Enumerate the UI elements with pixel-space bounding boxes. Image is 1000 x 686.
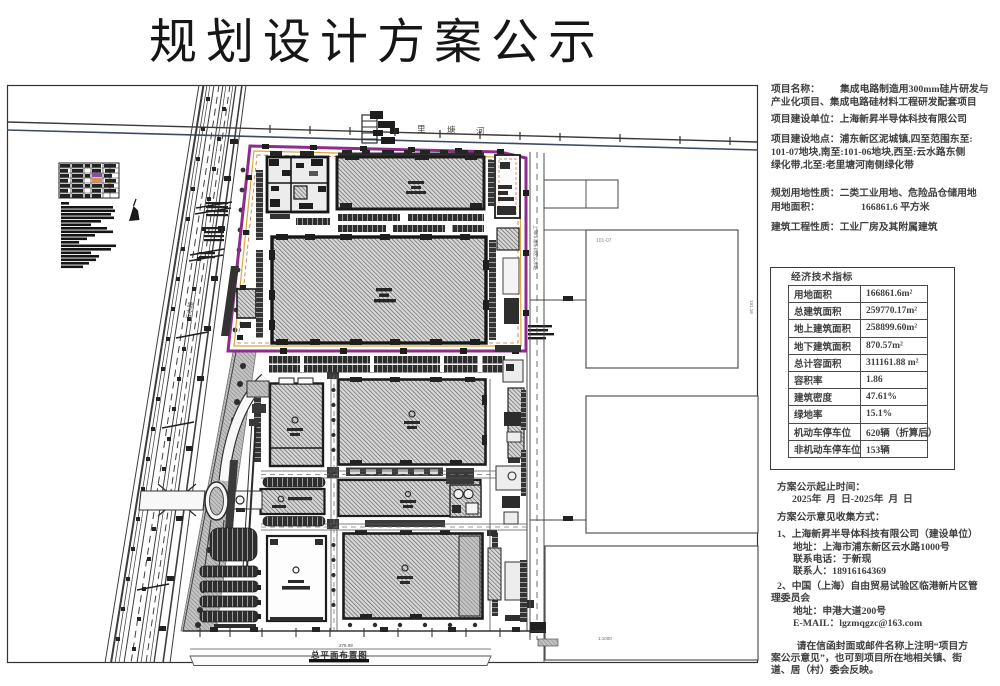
svg-text:总平面布置图: 总平面布置图: [311, 650, 368, 660]
svg-text:1:1000: 1:1000: [598, 636, 612, 641]
svg-text:101-07: 101-07: [596, 238, 612, 244]
svg-text:275.08: 275.08: [339, 643, 353, 648]
svg-text:上海市浦东新区云水路: 上海市浦东新区云水路: [532, 225, 539, 270]
svg-text:塘: 塘: [447, 125, 456, 135]
svg-text:191.16: 191.16: [749, 300, 754, 314]
svg-text:里: 里: [417, 124, 426, 134]
